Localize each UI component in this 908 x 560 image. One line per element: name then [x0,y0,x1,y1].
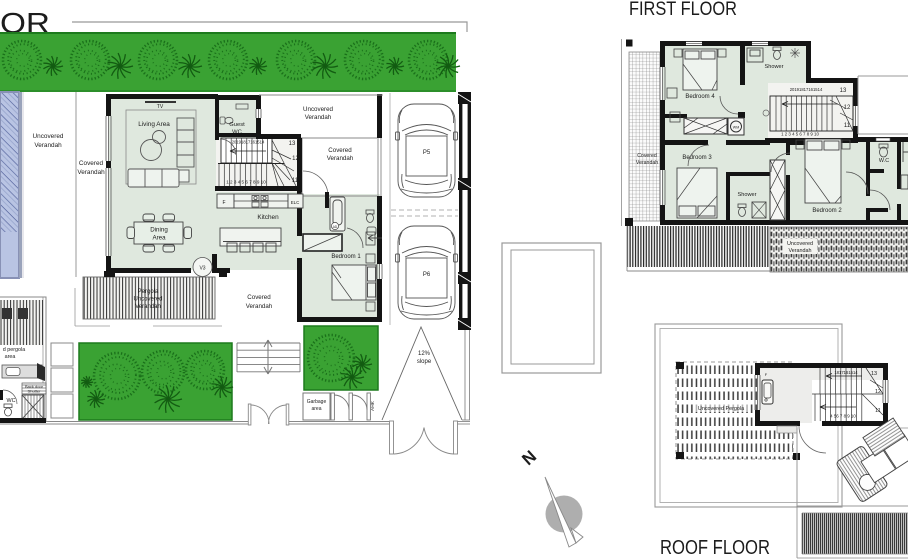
svg-text:Verandah: Verandah [305,114,332,121]
svg-text:4 56 7 8 9 10: 4 56 7 8 9 10 [830,414,856,419]
svg-text:Verandah: Verandah [246,303,273,310]
svg-text:V3: V3 [199,266,205,272]
svg-text:20191817161514: 20191817161514 [790,87,823,92]
svg-text:TV: TV [157,104,164,110]
svg-text:Garbage: Garbage [307,399,327,405]
svg-text:Covered: Covered [637,153,657,159]
svg-text:Living Area: Living Area [138,121,170,128]
svg-text:AHK: AHK [370,400,376,411]
svg-text:ELC: ELC [291,200,300,205]
svg-text:W.C: W.C [879,158,889,164]
svg-text:1817161514: 1817161514 [834,370,858,375]
svg-text:Kitchen: Kitchen [257,214,279,221]
svg-text:Bedroom 3: Bedroom 3 [682,155,712,161]
svg-text:Uncovered: Uncovered [133,297,162,303]
svg-text:Uncovered: Uncovered [787,241,813,247]
svg-text:Area: Area [152,235,166,242]
svg-text:d pergola: d pergola [3,347,25,353]
svg-text:Verandah: Verandah [34,142,62,149]
svg-text:AD: AD [333,225,338,229]
svg-text:FIRST FLOOR: FIRST FLOOR [629,0,737,20]
svg-text:Verandah: Verandah [636,160,658,166]
svg-text:Covered: Covered [79,160,104,167]
svg-text:Covered: Covered [247,294,271,301]
svg-text:Shutter: Shutter [28,389,42,394]
svg-text:Covered: Covered [328,147,352,154]
svg-text:P6: P6 [423,272,431,278]
svg-text:WC: WC [232,130,242,136]
svg-text:20191817161514: 20191817161514 [232,140,265,145]
svg-text:P5: P5 [423,150,431,156]
svg-text:Shower: Shower [765,64,784,70]
svg-text:WM: WM [733,126,739,130]
svg-text:Verandah: Verandah [788,248,811,254]
svg-text:Uncovered Pergola: Uncovered Pergola [698,406,744,412]
svg-text:13: 13 [289,141,296,147]
svg-text:Uncovered: Uncovered [303,106,333,113]
svg-text:ROOF FLOOR: ROOF FLOOR [660,537,770,559]
svg-text:Shower: Shower [738,192,757,198]
svg-text:Guest: Guest [229,122,245,128]
svg-text:Bedroom 4: Bedroom 4 [685,94,715,100]
svg-text:1 2 3 4 5 6 7 8 9 10: 1 2 3 4 5 6 7 8 9 10 [781,132,819,137]
svg-text:Verandah: Verandah [77,169,105,176]
svg-text:area: area [311,406,321,412]
svg-text:11: 11 [875,408,881,414]
svg-text:13: 13 [871,371,877,377]
svg-text:Bedroom 2: Bedroom 2 [812,208,842,214]
svg-text:1 2 3 4 5 6 7 8 9 10: 1 2 3 4 5 6 7 8 9 10 [226,180,266,185]
svg-text:Dining: Dining [150,227,168,234]
svg-text:WC: WC [7,398,16,404]
svg-text:Verandah: Verandah [135,304,161,310]
svg-text:Verandah: Verandah [327,155,354,162]
svg-text:12: 12 [875,389,881,395]
svg-text:12%: 12% [418,351,431,357]
svg-text:area: area [5,354,16,360]
svg-text:Pergola: Pergola [138,289,159,295]
svg-text:F: F [222,200,225,206]
svg-text:Bedroom 1: Bedroom 1 [331,254,361,260]
svg-text:Uncovered: Uncovered [33,133,64,140]
svg-text:13: 13 [840,88,847,94]
svg-text:slope: slope [417,359,432,365]
